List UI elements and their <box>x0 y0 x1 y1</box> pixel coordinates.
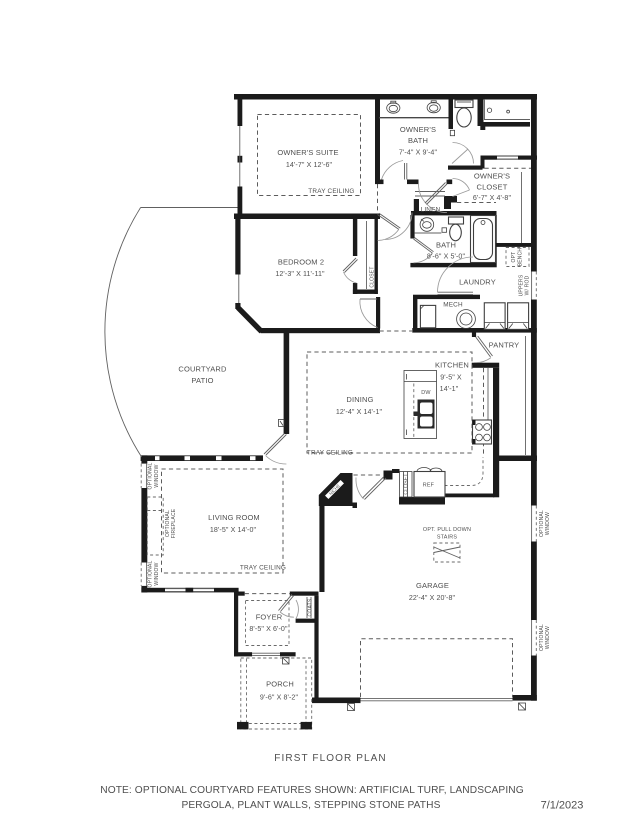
svg-text:FOYER: FOYER <box>256 612 283 621</box>
svg-text:6'-7" X 4'-8": 6'-7" X 4'-8" <box>473 194 512 202</box>
svg-text:BEDROOM 2: BEDROOM 2 <box>278 258 324 267</box>
svg-text:CLOSET: CLOSET <box>477 183 508 192</box>
svg-text:OWNER'S: OWNER'S <box>400 125 436 134</box>
svg-text:GARAGE: GARAGE <box>416 581 449 590</box>
svg-text:OPTIONAL: OPTIONAL <box>148 561 154 588</box>
svg-text:WINDOW: WINDOW <box>545 626 551 649</box>
svg-text:NOTE: OPTIONAL COURTYARD FEATU: NOTE: OPTIONAL COURTYARD FEATURES SHOWN:… <box>100 785 524 796</box>
svg-text:DINING: DINING <box>346 395 373 404</box>
svg-text:8'-6" X 5'-0": 8'-6" X 5'-0" <box>427 253 466 261</box>
svg-text:9'-5" X: 9'-5" X <box>440 374 462 382</box>
svg-text:PANTRY: PANTRY <box>489 341 520 350</box>
svg-text:18'-5" X 14'-0": 18'-5" X 14'-0" <box>210 526 257 534</box>
svg-text:WINDOW: WINDOW <box>545 512 551 535</box>
svg-text:7'-4" X 9'-4": 7'-4" X 9'-4" <box>399 148 438 156</box>
svg-text:14'-7" X 12'-6": 14'-7" X 12'-6" <box>286 161 333 169</box>
svg-text:FIRST FLOOR PLAN: FIRST FLOOR PLAN <box>274 753 386 764</box>
svg-text:KITCHEN: KITCHEN <box>435 361 469 370</box>
svg-text:14'-1": 14'-1" <box>440 385 459 393</box>
svg-text:W/ ROD: W/ ROD <box>525 275 531 295</box>
svg-text:LIVING ROOM: LIVING ROOM <box>208 513 260 522</box>
svg-text:WINDOW: WINDOW <box>154 562 160 585</box>
svg-text:OPT. PULL DOWN: OPT. PULL DOWN <box>423 527 471 533</box>
svg-text:PERGOLA, PLANT WALLS, STEPPING: PERGOLA, PLANT WALLS, STEPPING STONE PAT… <box>182 800 441 811</box>
svg-text:OPTIONAL: OPTIONAL <box>148 463 154 490</box>
svg-text:DW: DW <box>421 390 431 396</box>
svg-text:22'-4" X 20'-8": 22'-4" X 20'-8" <box>409 594 456 602</box>
svg-text:PORCH: PORCH <box>266 680 294 689</box>
svg-text:REF: REF <box>423 483 435 489</box>
svg-text:TRAY CEILING: TRAY CEILING <box>308 188 354 195</box>
svg-text:LINEN: LINEN <box>421 207 441 214</box>
svg-text:TRAY CEILING: TRAY CEILING <box>307 450 353 457</box>
svg-text:MECH: MECH <box>443 302 463 309</box>
svg-text:WINDOW: WINDOW <box>154 464 160 487</box>
svg-text:OWNER'S: OWNER'S <box>474 172 510 181</box>
svg-text:CLOSET: CLOSET <box>404 473 410 494</box>
svg-text:PATIO: PATIO <box>191 376 213 385</box>
svg-text:OPT: OPT <box>511 252 517 263</box>
svg-text:COATS: COATS <box>308 598 314 616</box>
svg-text:BATH: BATH <box>436 241 456 250</box>
svg-text:CLOSET: CLOSET <box>370 266 376 287</box>
svg-text:LAUNDRY: LAUNDRY <box>459 278 496 287</box>
svg-text:12'-4" X 14'-1": 12'-4" X 14'-1" <box>336 408 383 416</box>
svg-text:TRAY CEILING: TRAY CEILING <box>240 565 286 572</box>
svg-text:7/1/2023: 7/1/2023 <box>541 800 584 812</box>
svg-text:COURTYARD: COURTYARD <box>178 365 227 374</box>
svg-text:STAIRS: STAIRS <box>437 535 457 541</box>
svg-text:BENCH: BENCH <box>518 248 524 267</box>
svg-text:8'-5" X 6'-0": 8'-5" X 6'-0" <box>249 625 288 633</box>
svg-text:FIREPLACE: FIREPLACE <box>171 508 177 538</box>
svg-text:OWNER'S SUITE: OWNER'S SUITE <box>277 148 338 157</box>
svg-text:12'-3" X 11'-11": 12'-3" X 11'-11" <box>275 270 325 278</box>
svg-text:9'-6" X 8'-2": 9'-6" X 8'-2" <box>260 693 299 701</box>
svg-text:BATH: BATH <box>408 136 428 145</box>
